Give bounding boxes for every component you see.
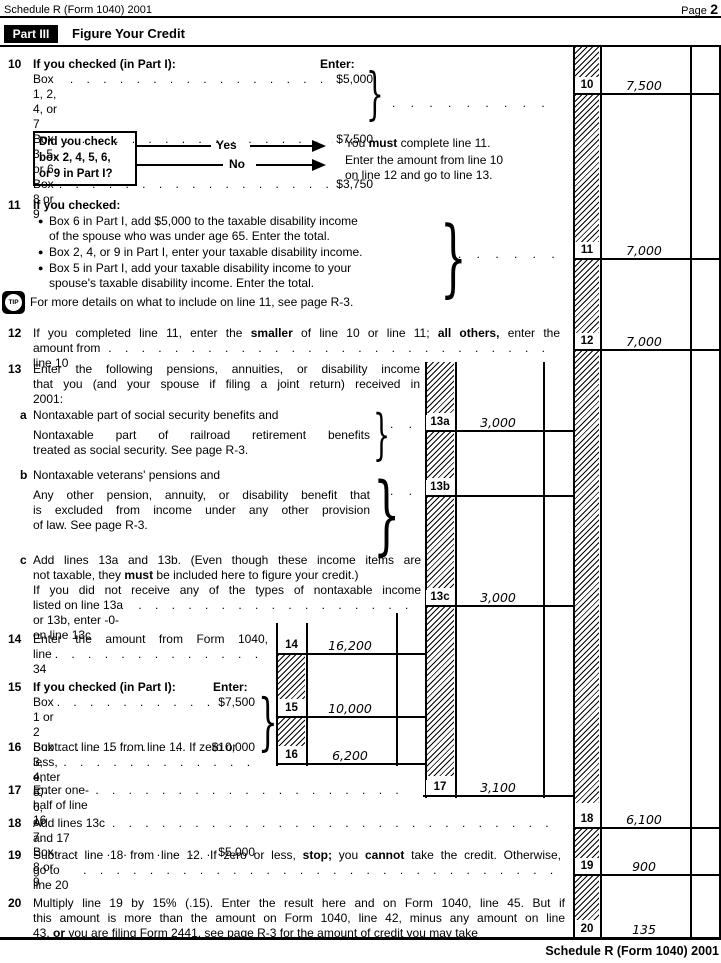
dot-leader: . . . . . . . . . . . . . . . . . . . . … <box>57 695 216 710</box>
hatched-cell <box>575 260 599 333</box>
text-line: Multiply line 19 by 15% (.15). Enter the… <box>33 896 565 911</box>
text-line: Any other pension, annuity, or disabilit… <box>33 488 370 503</box>
dot-leader: . . . . . . . . . . . . . . . . . . . . … <box>108 341 557 356</box>
line-19-number: 19 <box>8 848 30 863</box>
text: line 34 <box>33 647 52 677</box>
bullet-item: ● Box 2, 4, or 9 in Part I, enter your t… <box>38 245 440 260</box>
line-13c-amount[interactable]: 3,000 <box>455 590 541 605</box>
hatched-cell <box>575 829 599 858</box>
bullet-line: spouse's taxable disability income. Ente… <box>49 276 351 291</box>
part-title: Figure Your Credit <box>72 26 185 41</box>
text-line: go to line 20 . . . . . . . . . . . . . … <box>33 863 561 893</box>
box-label-13c: 13c <box>426 590 454 605</box>
line-18-amount[interactable]: 6,100 <box>600 812 688 827</box>
part-label-badge: Part III <box>4 25 58 43</box>
line-13-number: 13 <box>8 362 30 377</box>
text-line: Nontaxable veterans' pensions and <box>33 468 370 483</box>
arrow-head-icon <box>312 140 326 152</box>
dot-leader: . . . . . . . . . . . . . . . . . . . . … <box>112 816 558 831</box>
line-19-amount[interactable]: 900 <box>600 859 688 874</box>
line-15-intro: If you checked (in Part I): <box>33 680 176 695</box>
text-line: Subtract line 15 from line 14. If zero o… <box>33 740 271 755</box>
grid-line <box>600 47 602 940</box>
bullet-item: ● Box 6 in Part I, add $5,000 to the tax… <box>38 214 440 244</box>
text-line: Subtract line 18 from line 12. If zero o… <box>33 848 561 863</box>
hatched-cell <box>575 47 599 77</box>
bullet-text: Box 6 in Part I, add $5,000 to the taxab… <box>49 214 358 244</box>
question-line: Did you check <box>39 134 135 150</box>
dot-leader: . . <box>390 484 416 499</box>
box-label-17: 17 <box>426 780 454 795</box>
line-19-text: Subtract line 18 from line 12. If zero o… <box>33 848 561 893</box>
box-label-11: 11 <box>575 243 599 258</box>
bullet-line: Box 5 in Part I, add your taxable disabi… <box>49 261 351 276</box>
bullet-text: Box 2, 4, or 9 in Part I, enter your tax… <box>49 245 363 260</box>
line-13b-text: Nontaxable veterans' pensions and Any ot… <box>33 468 370 533</box>
grid-line <box>543 362 545 798</box>
text-line: is excluded from income under any other … <box>33 503 370 518</box>
tip-icon: TIP <box>2 291 25 314</box>
question-line: box 2, 4, 5, 6, <box>39 150 135 166</box>
bullet-line: of the spouse who was under age 65. Ente… <box>49 229 358 244</box>
text-line: Enter the amount from Form 1040, <box>33 632 268 647</box>
bullet-text: Box 5 in Part I, add your taxable disabi… <box>49 261 351 291</box>
option-label: Box 1 or 2 <box>33 695 54 740</box>
line-11-amount[interactable]: 7,000 <box>600 243 688 258</box>
box-label-18: 18 <box>575 812 599 827</box>
yes-result: You must complete line 11. <box>345 136 555 151</box>
line-20-text: Multiply line 19 by 15% (.15). Enter the… <box>33 896 565 941</box>
bullet-icon: ● <box>38 261 49 276</box>
bullet-icon: ● <box>38 245 49 260</box>
line-13a-amount[interactable]: 3,000 <box>455 415 541 430</box>
line-14-number: 14 <box>8 632 30 647</box>
box-label-10: 10 <box>575 78 599 93</box>
line-20-number: 20 <box>8 896 30 911</box>
box-label-12: 12 <box>575 334 599 349</box>
dot-leader: . . . . . . . . . . . . . . . . . . . . … <box>55 647 258 662</box>
bullet-line: Box 6 in Part I, add $5,000 to the taxab… <box>49 214 358 229</box>
question-line: or 9 in Part I? <box>39 166 135 182</box>
text-line: Add lines 13a and 13b. (Even though thes… <box>33 553 421 568</box>
box-label-15: 15 <box>278 701 305 716</box>
line-17-number: 17 <box>8 783 30 798</box>
text-line: 43, or you are filing Form 2441, see pag… <box>33 926 565 941</box>
hatched-cell <box>575 876 599 920</box>
hatched-cell <box>427 497 454 588</box>
line-12-number: 12 <box>8 326 30 341</box>
tip-icon-label: TIP <box>5 294 22 311</box>
box-label-13b: 13b <box>426 480 454 495</box>
option-row: Box 1 or 2 . . . . . . . . . . . . . . .… <box>33 695 255 740</box>
dot-leader: . . . . . . . . . . . . . . . . . . . . … <box>138 598 418 613</box>
brace: } <box>366 67 384 123</box>
flowchart-question-box: Did you check box 2, 4, 5, 6, or 9 in Pa… <box>33 131 137 186</box>
text-line: this amount is more than the amount on F… <box>33 911 565 926</box>
text: go to line 20 <box>33 863 80 893</box>
text-line: of law. See page R-3. <box>33 518 370 533</box>
option-amount: $7,500 <box>218 695 255 710</box>
text-line: Enter the following pensions, annuities,… <box>33 362 420 377</box>
part-label: Part III <box>13 27 50 42</box>
no-arrow-line <box>256 164 312 166</box>
no-result-line2: on line 12 and go to line 13. <box>345 168 555 183</box>
yes-label: Yes <box>216 138 237 153</box>
dot-leader: . . . . . . . . . . . . . . . . . . . . … <box>70 72 333 87</box>
box-label-16: 16 <box>278 748 305 763</box>
line-13c-text: Add lines 13a and 13b. (Even though thes… <box>33 553 421 643</box>
hatched-cell <box>278 718 305 746</box>
yes-arrow-line <box>250 145 312 147</box>
dot-leader: . . . . . . . . . . . . . . . . . . . . … <box>392 96 554 111</box>
page-number: 2 <box>710 1 718 17</box>
text-line: line 34 . . . . . . . . . . . . . . . . … <box>33 647 261 677</box>
dot-leader: . . . . . . . . . . . . . . . . . . . . … <box>95 783 402 798</box>
no-label: No <box>229 157 245 172</box>
line-12-amount[interactable]: 7,000 <box>600 334 688 349</box>
dot-leader: . . <box>390 417 416 432</box>
tip-text: For more details on what to include on l… <box>30 295 353 310</box>
arrow-head-icon <box>312 159 326 171</box>
line-15-enter-label: Enter: <box>213 680 248 695</box>
line-10-number: 10 <box>8 57 30 72</box>
box-label-20: 20 <box>575 922 599 937</box>
line-11-bullets: ● Box 6 in Part I, add $5,000 to the tax… <box>38 214 440 291</box>
bullet-icon: ● <box>38 214 49 229</box>
hatched-cell <box>427 432 454 478</box>
bullet-item: ● Box 5 in Part I, add your taxable disa… <box>38 261 440 291</box>
line-17-amount[interactable]: 3,100 <box>455 780 541 795</box>
dot-leader: . . . . . . . . . . . . . . . . . . . . … <box>63 755 252 770</box>
text-line: that you (and your spouse if filing a jo… <box>33 377 420 392</box>
line-11-number: 11 <box>8 198 30 213</box>
line-13-text: Enter the following pensions, annuities,… <box>33 362 420 407</box>
line-14-text: Enter the amount from Form 1040, line 34… <box>33 632 268 677</box>
box-label-13a: 13a <box>426 415 454 430</box>
brace: } <box>373 408 390 462</box>
line-13c-letter: c <box>20 553 32 568</box>
line-15-number: 15 <box>8 680 30 695</box>
footer-form-id: Schedule R (Form 1040) 2001 <box>430 944 719 959</box>
line-20-amount[interactable]: 135 <box>600 922 688 937</box>
text-line: treated as social security. See page R-3… <box>33 443 370 458</box>
hatched-cell <box>427 607 454 776</box>
line-13a-letter: a <box>20 408 32 423</box>
schedule-r-page: Schedule R (Form 1040) 2001 Page 2 Part … <box>0 0 721 963</box>
bullet-line: Box 2, 4, or 9 in Part I, enter your tax… <box>49 245 363 260</box>
line-15-amount[interactable]: 10,000 <box>306 701 394 716</box>
rule <box>0 45 721 47</box>
line-18-number: 18 <box>8 816 30 831</box>
line-13b-letter: b <box>20 468 32 483</box>
line-16-number: 16 <box>8 740 30 755</box>
line-18-text: Add lines 13c and 17 . . . . . . . . . .… <box>33 816 561 846</box>
text: Add lines 13c and 17 <box>33 816 109 846</box>
grid-line <box>423 795 573 797</box>
text-line: Nontaxable part of railroad retirement b… <box>33 428 370 443</box>
grid-line <box>690 47 692 940</box>
yes-arrow-line <box>137 145 211 147</box>
text-line: not taxable, they must be included here … <box>33 568 421 583</box>
line-13a-text: Nontaxable part of social security benef… <box>33 408 370 458</box>
line-10-intro: If you checked (in Part I): <box>33 57 176 72</box>
text-line: If you completed line 11, enter the smal… <box>33 326 560 341</box>
no-arrow-line <box>137 164 223 166</box>
grid-line <box>276 763 425 765</box>
option-label: Box 1, 2, 4, or 7 <box>33 72 67 132</box>
rule <box>0 16 721 18</box>
text-line: Nontaxable part of social security benef… <box>33 408 370 423</box>
dot-leader: . . . . . . . . . . . . . . . . . . . . … <box>83 863 558 878</box>
line-16-amount[interactable]: 6,200 <box>306 748 394 763</box>
hatched-cell <box>575 95 599 242</box>
text-line: 2001: <box>33 392 420 407</box>
hatched-cell <box>278 655 305 699</box>
line-11-intro: If you checked: <box>33 198 120 213</box>
dot-leader: . . . . . . . . . . . . . . . . . . . . … <box>458 247 554 262</box>
option-row: Box 1, 2, 4, or 7 . . . . . . . . . . . … <box>33 72 373 132</box>
box-label-19: 19 <box>575 859 599 874</box>
line-10-amount[interactable]: 7,500 <box>600 78 688 93</box>
text-line: If you did not receive any of the types … <box>33 583 421 598</box>
hatched-cell <box>575 351 599 803</box>
line-10-enter-label: Enter: <box>320 57 355 72</box>
no-result-line1: Enter the amount from line 10 <box>345 153 555 168</box>
